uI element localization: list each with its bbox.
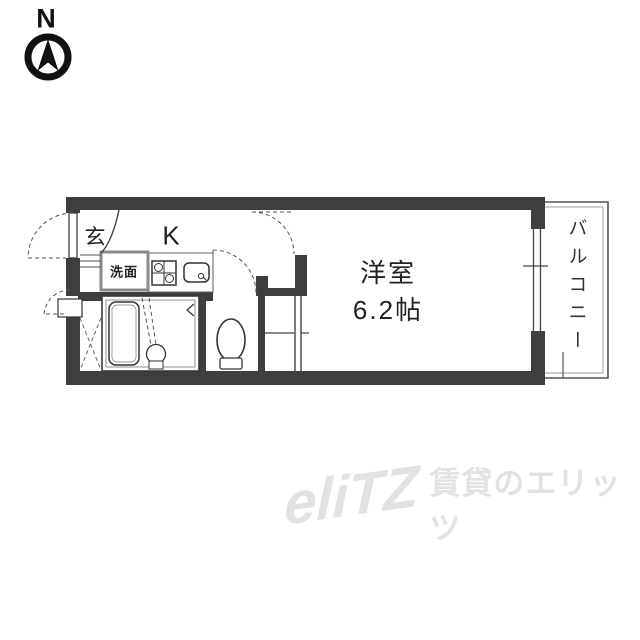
toilet-door-swing: [213, 250, 256, 293]
window-lines: [523, 229, 548, 331]
toilet-icon: [217, 319, 245, 369]
bath-unit: [102, 296, 199, 371]
wash-basin-icon: [147, 345, 166, 370]
floorplan-page: N: [0, 0, 640, 640]
closet: [265, 296, 309, 371]
balcony-label: バルコニー: [563, 218, 590, 358]
room-door-swing: [252, 212, 294, 254]
main-room-size: 6.2帖: [353, 292, 423, 329]
watermark-text: 賃貸のエリッツ: [429, 444, 640, 548]
watermark: eliTZ 賃貸のエリッツ: [284, 444, 640, 548]
entrance-step-lines: [80, 255, 101, 267]
bathtub-icon: [109, 302, 139, 365]
main-room-label: 洋室 6.2帖: [353, 255, 423, 329]
watermark-logo: eliTZ: [284, 457, 420, 535]
main-room-name: 洋室: [353, 255, 423, 292]
entrance-label: 玄: [85, 221, 106, 251]
kitchen-label: K: [162, 221, 179, 252]
entrance-door-swing: [28, 213, 73, 258]
washbasin-label: 洗面: [110, 262, 138, 281]
entrance-door: [69, 213, 77, 258]
storage-x-mark: [80, 318, 101, 370]
